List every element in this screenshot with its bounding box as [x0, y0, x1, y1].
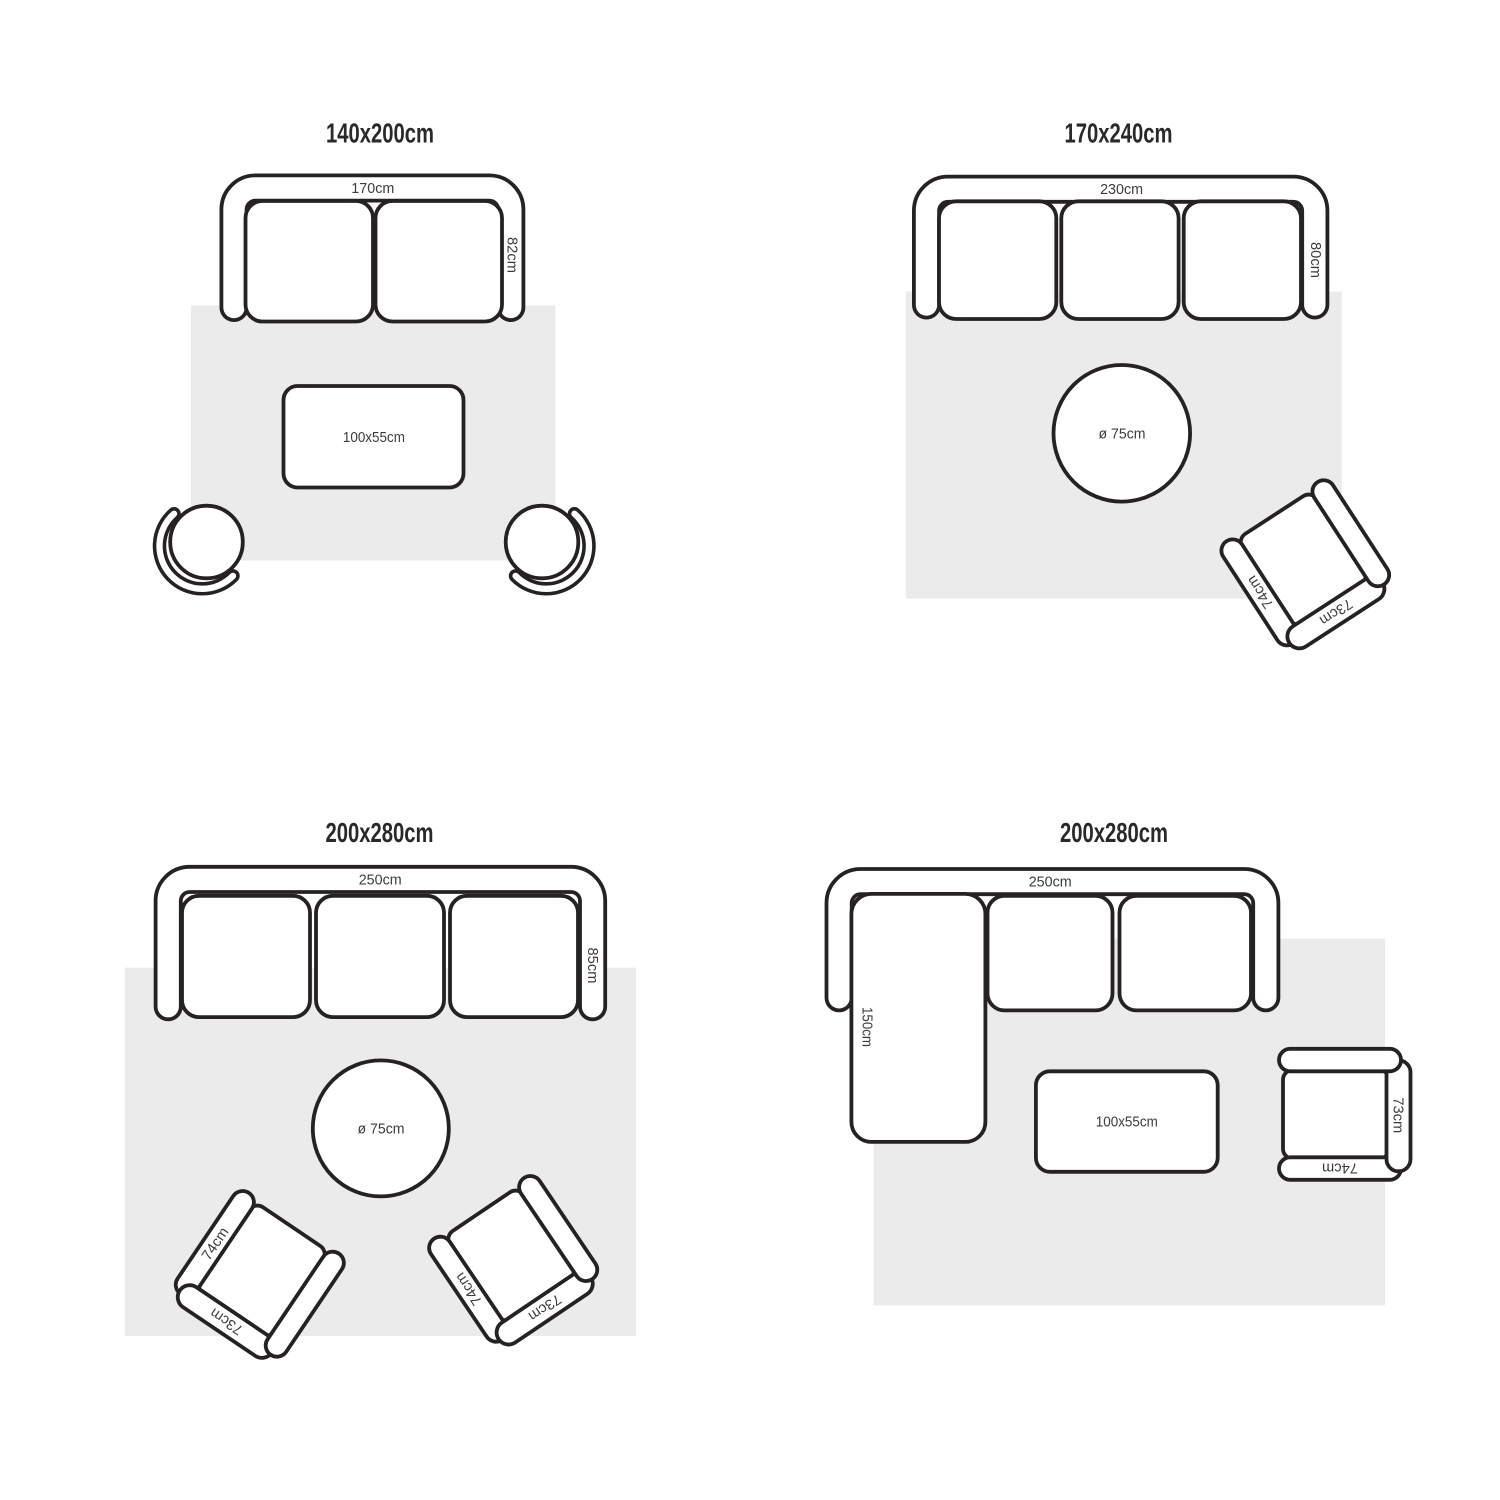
- svg-text:150cm: 150cm: [859, 1007, 875, 1047]
- svg-text:250cm: 250cm: [1029, 875, 1072, 891]
- svg-text:200x280cm: 200x280cm: [1060, 817, 1168, 848]
- svg-text:100x55cm: 100x55cm: [343, 430, 405, 446]
- svg-text:80cm: 80cm: [1307, 242, 1323, 278]
- svg-text:ø 75cm: ø 75cm: [358, 1122, 405, 1138]
- svg-text:100x55cm: 100x55cm: [1096, 1115, 1158, 1131]
- svg-text:200x280cm: 200x280cm: [326, 817, 434, 848]
- svg-text:ø 75cm: ø 75cm: [1099, 427, 1146, 443]
- svg-text:170cm: 170cm: [351, 181, 394, 197]
- svg-text:170x240cm: 170x240cm: [1065, 118, 1173, 149]
- svg-text:250cm: 250cm: [359, 872, 402, 888]
- svg-text:230cm: 230cm: [1100, 182, 1143, 198]
- svg-text:85cm: 85cm: [584, 948, 600, 984]
- svg-text:140x200cm: 140x200cm: [326, 118, 434, 149]
- svg-text:82cm: 82cm: [504, 237, 520, 273]
